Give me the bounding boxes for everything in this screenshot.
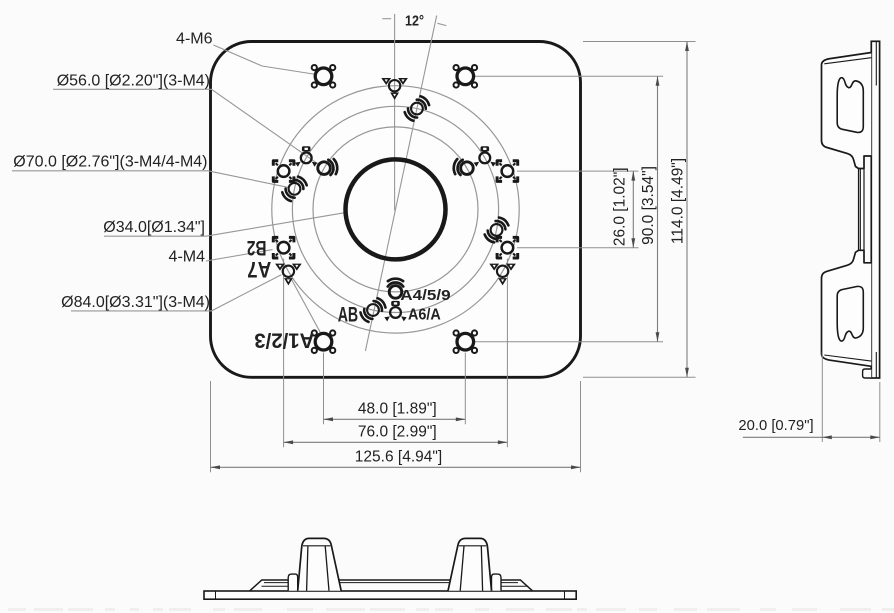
svg-text:48.0 [1.89"]: 48.0 [1.89"]: [358, 401, 437, 418]
svg-text:76.0 [2.99"]: 76.0 [2.99"]: [358, 424, 437, 441]
svg-text:12°: 12°: [405, 13, 424, 30]
svg-text:Ø56.0 [Ø2.20"](3-M4): Ø56.0 [Ø2.20"](3-M4): [57, 73, 210, 90]
svg-text:A7: A7: [247, 257, 271, 282]
svg-text:90.0 [3.54"]: 90.0 [3.54"]: [640, 166, 657, 245]
svg-text:Ø84.0[Ø3.31"](3-M4): Ø84.0[Ø3.31"](3-M4): [61, 294, 210, 311]
svg-text:Ø34.0[Ø1.34"]: Ø34.0[Ø1.34"]: [103, 219, 205, 236]
svg-text:A4/5/9: A4/5/9: [400, 287, 450, 304]
svg-text:A1/2/3: A1/2/3: [254, 328, 314, 351]
svg-text:20.0 [0.79"]: 20.0 [0.79"]: [738, 418, 813, 434]
svg-text:AB: AB: [338, 304, 359, 327]
svg-text:A6/A: A6/A: [408, 306, 441, 323]
svg-text:4-M6: 4-M6: [176, 31, 213, 48]
svg-text:114.0 [4.49"]: 114.0 [4.49"]: [670, 158, 687, 244]
svg-text:Ø70.0 [Ø2.76"](3-M4/4-M4): Ø70.0 [Ø2.76"](3-M4/4-M4): [13, 154, 207, 171]
svg-text:26.0 [1.02"]: 26.0 [1.02"]: [612, 167, 629, 246]
svg-text:B2: B2: [247, 236, 267, 259]
svg-text:4-M4: 4-M4: [169, 248, 206, 265]
svg-text:125.6 [4.94"]: 125.6 [4.94"]: [355, 449, 442, 466]
